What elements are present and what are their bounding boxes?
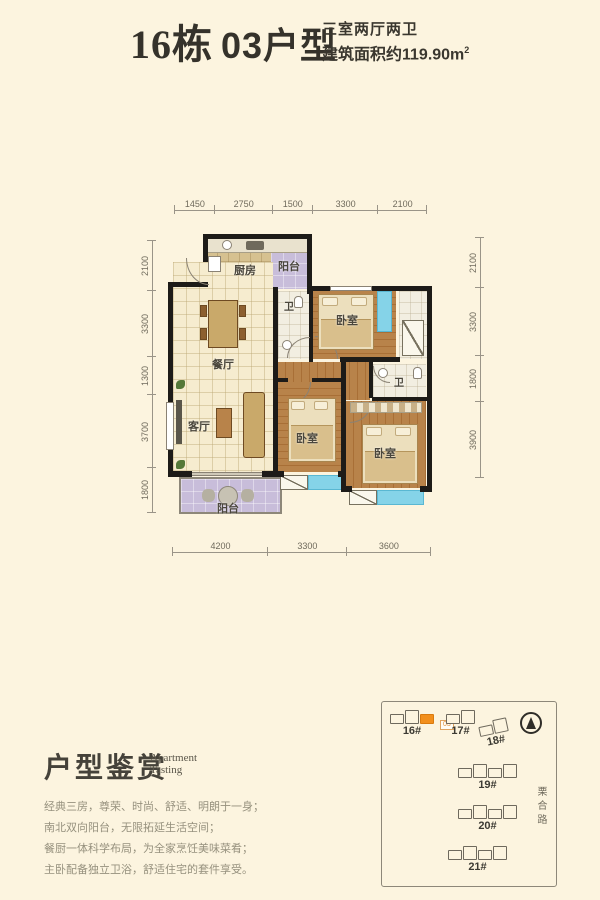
highlight-unit bbox=[420, 714, 434, 724]
sitemap-building-20: 20# bbox=[458, 805, 517, 832]
building-footprint bbox=[458, 764, 517, 778]
label-balcony-top: 阳台 bbox=[278, 258, 300, 274]
label-bedroom3: 卧室 bbox=[374, 445, 396, 461]
description-line: 经典三房，尊荣、时尚、舒适、明朗于一身； bbox=[44, 802, 344, 813]
building-footprint bbox=[390, 710, 434, 724]
bath2-toilet-icon bbox=[413, 367, 422, 379]
label-kitchen: 厨房 bbox=[234, 262, 256, 278]
building-label: 16# bbox=[390, 725, 434, 737]
coffee-table bbox=[216, 408, 232, 438]
building-label: 20# bbox=[458, 820, 517, 832]
wall bbox=[278, 471, 284, 477]
building-footprint bbox=[448, 846, 507, 860]
compass-north-icon bbox=[520, 712, 542, 734]
label-dining: 餐厅 bbox=[212, 356, 234, 372]
description-line: 餐厨一体科学布局，为全家烹饪美味菜肴； bbox=[44, 844, 344, 855]
dining-table bbox=[208, 300, 238, 348]
sitemap-building-21: 21# bbox=[448, 846, 507, 873]
wall bbox=[278, 378, 288, 382]
wall bbox=[427, 289, 432, 492]
wall bbox=[273, 287, 278, 362]
dining-chair bbox=[239, 305, 246, 317]
wall bbox=[168, 471, 192, 477]
road-label: 栗合路 bbox=[533, 786, 548, 828]
patio-chair-icon bbox=[241, 489, 254, 502]
dining-chair bbox=[200, 328, 207, 340]
building-label: 21# bbox=[448, 861, 507, 873]
description-line: 南北双向阳台，无限拓延生活空间； bbox=[44, 823, 344, 834]
window-left-wall bbox=[166, 402, 174, 450]
wardrobe-strip-bedroom3 bbox=[350, 402, 422, 413]
site-map: 16# 03 17# 18# 19# 20# bbox=[381, 701, 557, 887]
ac-unit-bedroom3 bbox=[349, 490, 377, 505]
wall bbox=[307, 234, 312, 294]
wall bbox=[262, 471, 278, 477]
patio-chair-icon bbox=[202, 489, 215, 502]
stove-icon bbox=[246, 241, 264, 250]
label-bedroom1: 卧室 bbox=[336, 312, 358, 328]
kitchen-sink-icon bbox=[222, 240, 232, 250]
building-footprint bbox=[458, 805, 517, 819]
building-label: 17# bbox=[446, 725, 475, 737]
description-line: 主卧配备独立卫浴，舒适住宅的套件享受。 bbox=[44, 865, 344, 876]
bay-window-bedroom3 bbox=[377, 490, 424, 505]
bath1-sink-icon bbox=[282, 340, 292, 350]
sofa bbox=[243, 392, 265, 458]
bath1-toilet-icon bbox=[294, 296, 303, 308]
sitemap-building-19: 19# bbox=[458, 764, 517, 791]
wall bbox=[312, 378, 342, 382]
wardrobe-closet bbox=[402, 320, 424, 356]
window-bedroom1-top bbox=[330, 286, 372, 291]
dining-chair bbox=[200, 305, 207, 317]
tv-cabinet bbox=[176, 400, 182, 444]
plant-icon bbox=[176, 380, 185, 389]
wall bbox=[338, 471, 346, 477]
section-subtitle-en: Apartment Tasting bbox=[150, 752, 197, 776]
label-balcony-bottom: 阳台 bbox=[217, 500, 239, 516]
fridge-icon bbox=[208, 256, 221, 272]
poster-page: 16栋03户型 三室两厅两卫 建筑面积约119.90m2 14502750150… bbox=[0, 0, 600, 900]
ac-unit-bedroom2 bbox=[280, 475, 308, 490]
balcony-sliding-door bbox=[192, 472, 262, 476]
label-bath2: 卫 bbox=[394, 374, 404, 389]
bath2-sink-icon bbox=[378, 368, 388, 378]
bay-window-bedroom1 bbox=[377, 291, 392, 332]
sitemap-building-17: 17# bbox=[446, 710, 475, 737]
wall bbox=[372, 397, 428, 401]
description-block: 经典三房，尊荣、时尚、舒适、明朗于一身； 南北双向阳台，无限拓延生活空间； 餐厨… bbox=[44, 802, 344, 886]
building-label: 19# bbox=[458, 779, 517, 791]
plant-icon bbox=[176, 460, 185, 469]
floorplan: 厨房 阳台 卫 卧室 餐厅 客厅 卧室 卫 卧室 阳台 bbox=[0, 0, 600, 600]
wall bbox=[346, 486, 352, 492]
label-bedroom2: 卧室 bbox=[296, 430, 318, 446]
sitemap-building-16: 16# 03 bbox=[390, 710, 434, 737]
dining-chair bbox=[239, 328, 246, 340]
wall bbox=[420, 486, 432, 492]
building-footprint bbox=[446, 710, 475, 724]
label-bath1: 卫 bbox=[284, 298, 294, 313]
sitemap-building-18: 18# bbox=[478, 717, 512, 749]
label-living: 客厅 bbox=[188, 418, 210, 434]
